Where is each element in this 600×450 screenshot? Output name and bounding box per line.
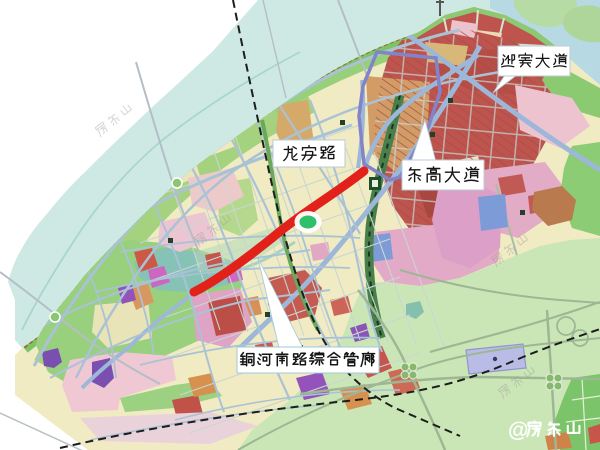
svg-text:@: @ xyxy=(508,419,528,442)
